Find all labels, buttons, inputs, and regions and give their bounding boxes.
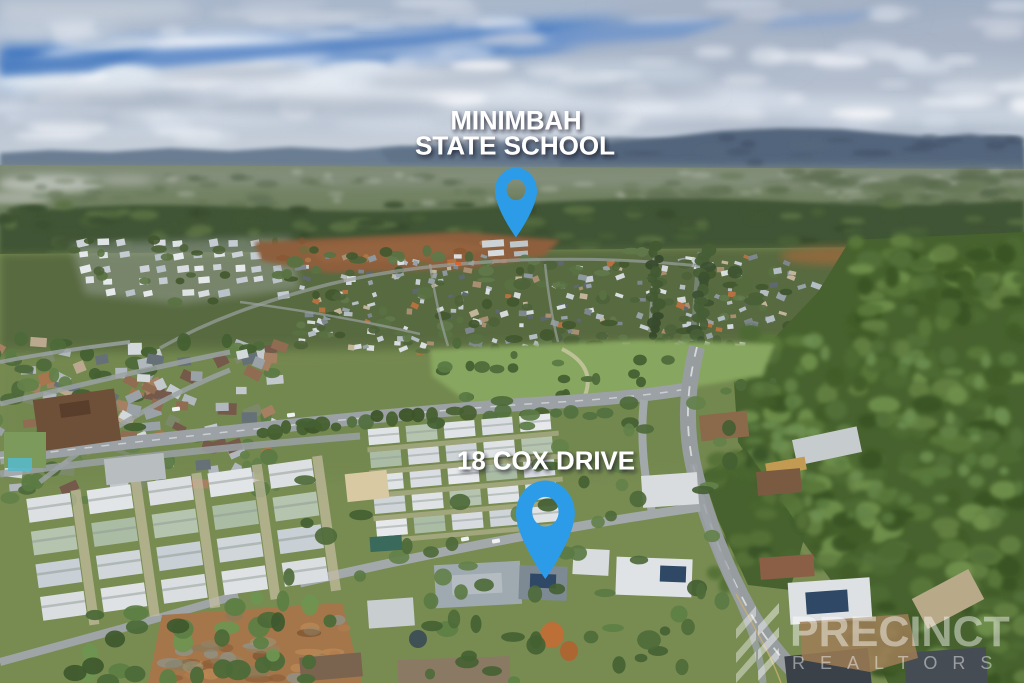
svg-text:18 COX DRIVE: 18 COX DRIVE bbox=[457, 446, 635, 476]
svg-text:REALTORS: REALTORS bbox=[792, 653, 1007, 673]
svg-text:PRECINCT: PRECINCT bbox=[790, 608, 1010, 656]
svg-text:STATE SCHOOL: STATE SCHOOL bbox=[415, 131, 615, 161]
